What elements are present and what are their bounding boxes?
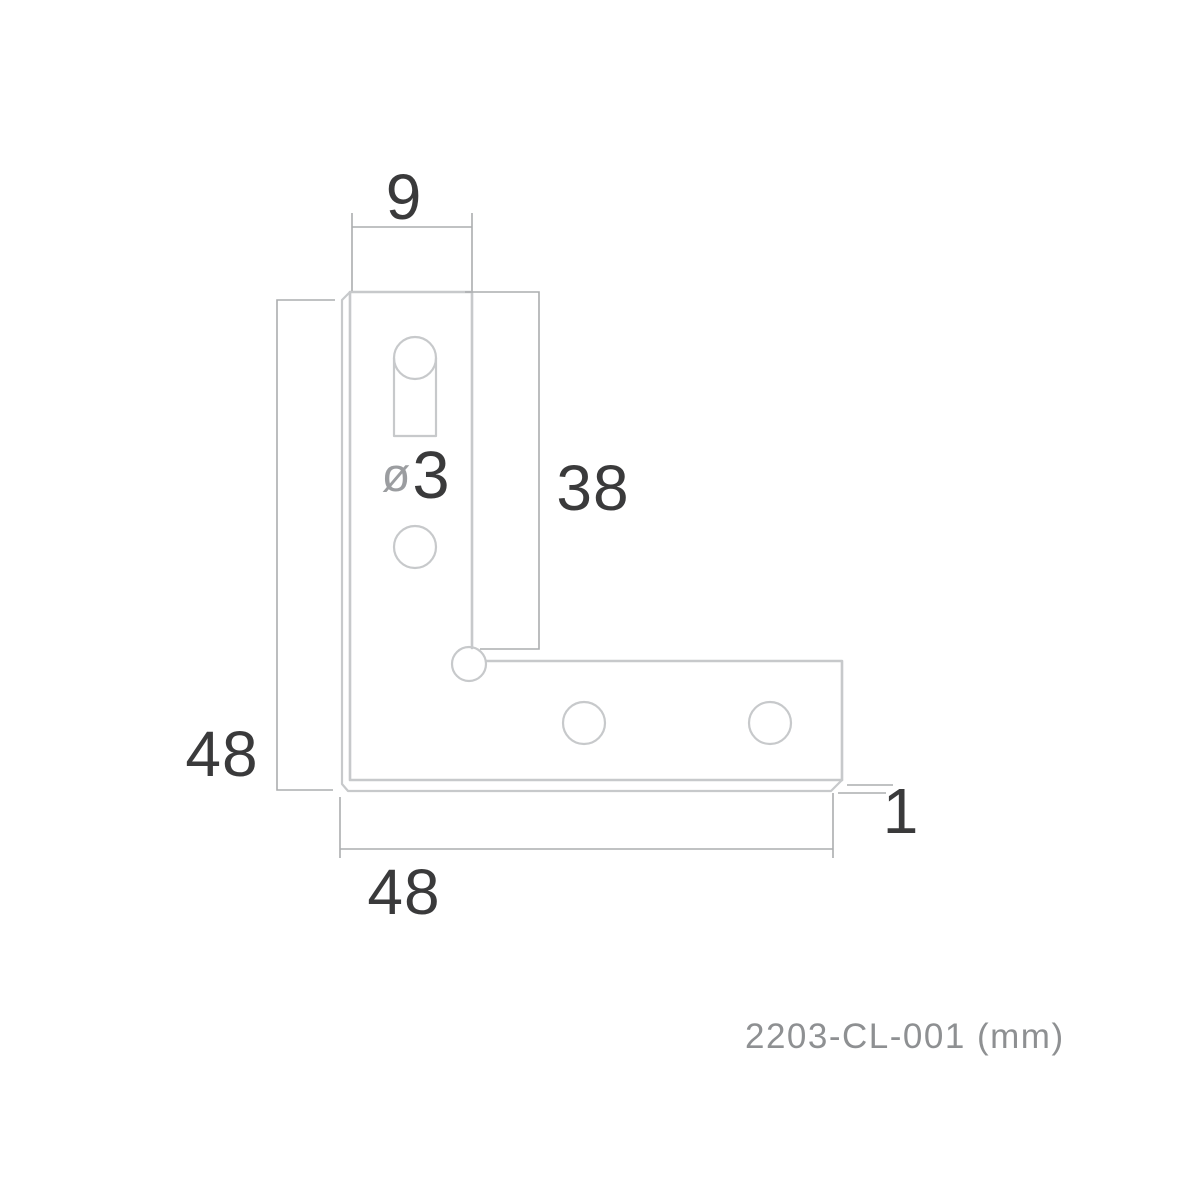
part-number-label: 2203-CL-001: [745, 1017, 966, 1056]
dim-outer-width-lines: [340, 793, 833, 858]
horizontal-arm-hole-right: [749, 702, 791, 744]
bracket-thickness-edge: [342, 292, 842, 791]
slot-hole-rectangle: [394, 358, 436, 436]
hole-diameter-callout: ø 3: [382, 438, 450, 513]
dim-thickness-label: 1: [883, 775, 920, 847]
diameter-value: 3: [412, 438, 449, 513]
slot-hole-circle: [394, 337, 436, 379]
units-label: (mm): [977, 1017, 1065, 1056]
dim-outer-height-label: 48: [185, 718, 258, 790]
diameter-symbol: ø: [382, 448, 411, 501]
dim-arm-width-label: 9: [386, 161, 423, 233]
corner-fillet-circle: [452, 647, 486, 681]
dim-inner-edge-label: 38: [556, 452, 629, 524]
bracket-technical-drawing: 9 38 48 48 1 ø 3 2203-CL-001 (mm): [0, 0, 1200, 1200]
bracket-part: [342, 292, 842, 791]
dim-outer-height-lines: [277, 300, 335, 790]
dim-outer-width-label: 48: [367, 856, 440, 928]
vertical-arm-hole: [394, 526, 436, 568]
drawing-footer: 2203-CL-001 (mm): [745, 1017, 1065, 1056]
horizontal-arm-hole-left: [563, 702, 605, 744]
dimension-lines: [277, 213, 893, 858]
dim-inner-edge-lines: [465, 292, 539, 649]
drawing-canvas: 9 38 48 48 1 ø 3 2203-CL-001 (mm): [0, 0, 1200, 1200]
